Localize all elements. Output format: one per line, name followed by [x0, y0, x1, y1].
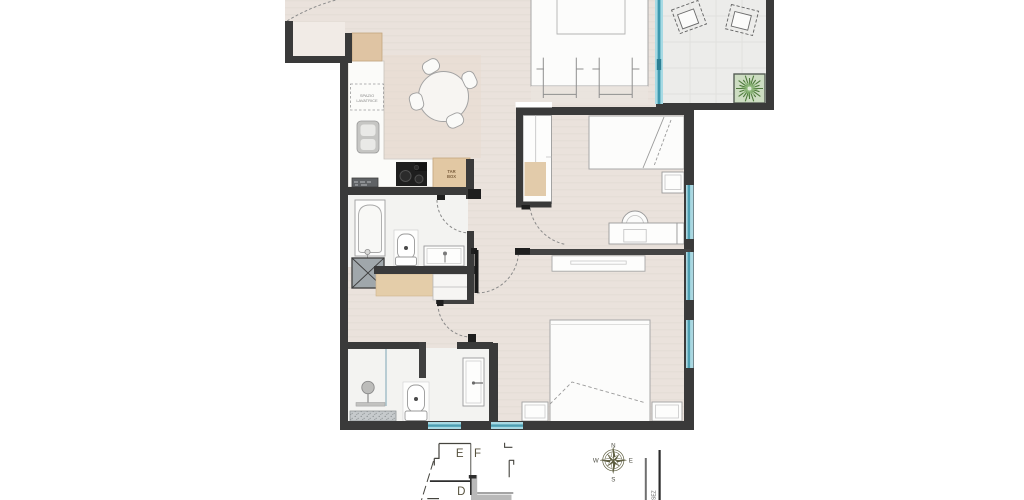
svg-text:S: S: [611, 476, 615, 483]
svg-text:F: F: [474, 448, 481, 460]
svg-text:BOX: BOX: [447, 174, 456, 179]
svg-text:D: D: [457, 486, 465, 498]
svg-text:LAVATRICE: LAVATRICE: [356, 98, 378, 103]
svg-text:N: N: [611, 443, 615, 450]
svg-text:E: E: [456, 448, 464, 460]
svg-text:SEZ: SEZ: [652, 490, 658, 500]
svg-text:W: W: [593, 458, 599, 465]
svg-text:E: E: [629, 458, 633, 465]
